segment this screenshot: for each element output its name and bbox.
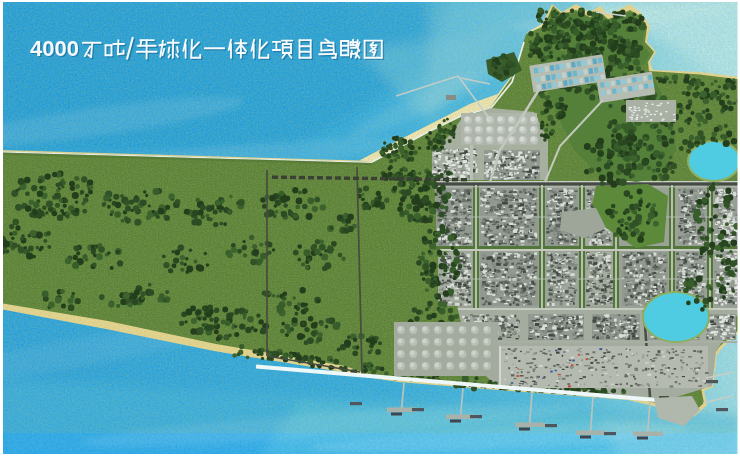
svg-text:4000: 4000 [30, 36, 79, 61]
